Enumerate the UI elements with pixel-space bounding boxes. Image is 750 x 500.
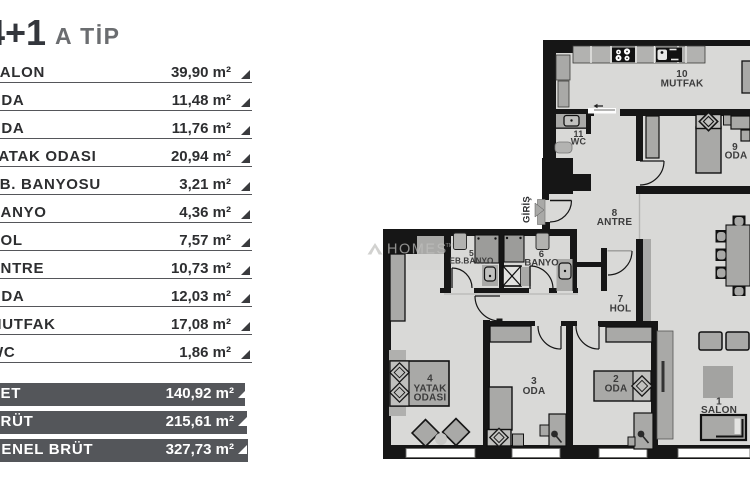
svg-text:BANYO: BANYO: [524, 257, 558, 268]
svg-text:GİRİŞ: GİRİŞ: [522, 196, 533, 223]
svg-text:EB.BANYO: EB.BANYO: [449, 256, 494, 265]
svg-text:ODA: ODA: [605, 383, 628, 394]
svg-text:TM: TM: [446, 243, 454, 249]
svg-text:MUTFAK: MUTFAK: [661, 79, 704, 90]
svg-text:ODA: ODA: [725, 151, 748, 162]
svg-text:HOL: HOL: [610, 304, 632, 315]
svg-text:WC: WC: [571, 137, 587, 147]
svg-text:ANTRE: ANTRE: [597, 217, 633, 228]
svg-text:ODASI: ODASI: [414, 393, 447, 404]
svg-text:ODA: ODA: [523, 386, 546, 397]
